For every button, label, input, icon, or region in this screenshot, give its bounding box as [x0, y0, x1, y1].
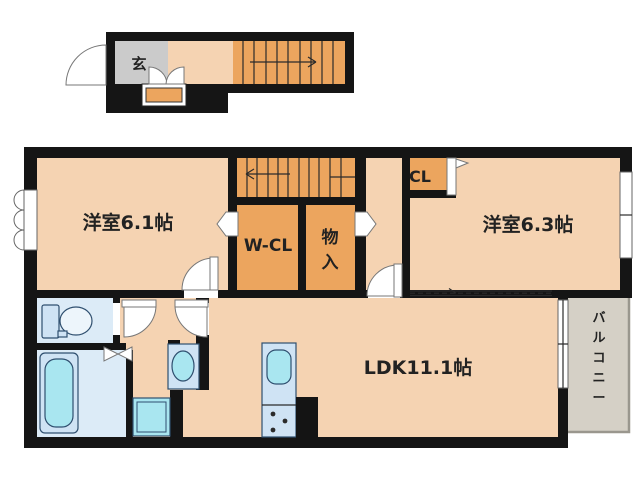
washing-machine-icon [133, 398, 170, 436]
bedroom2-window-icon [620, 172, 632, 258]
upper-floor-plan: 玄 [66, 32, 354, 113]
kitchen-sink-icon [267, 350, 291, 384]
entrance-step [146, 88, 182, 102]
floorplan-svg: 玄 [0, 0, 640, 480]
casement-windows-icon [14, 190, 37, 250]
stove-icon [296, 397, 318, 440]
staircase-upper-icon [237, 158, 355, 197]
main-floor-plan: 洋室6.1帖 W-CL 物入 CL 洋室6.3帖 LDK11.1帖 バルコニー [14, 147, 632, 448]
front-door-swing-icon [66, 45, 106, 85]
staircase-lower-icon [233, 41, 345, 84]
bathtub-icon [40, 353, 78, 433]
balcony-sliding-door-icon [558, 300, 568, 388]
balcony-label: バルコニー [592, 311, 605, 406]
walk-in-closet-label: W-CL [244, 236, 293, 256]
floorplan-canvas: 玄 [0, 0, 640, 480]
toilet-icon [42, 305, 92, 338]
bedroom2-label: 洋室6.3帖 [483, 213, 574, 236]
washbasin-icon [168, 340, 199, 389]
closet-label: CL [409, 167, 431, 186]
bedroom1-label: 洋室6.1帖 [83, 211, 174, 234]
entrance-label: 玄 [131, 55, 146, 73]
ldk-label: LDK11.1帖 [364, 356, 472, 379]
